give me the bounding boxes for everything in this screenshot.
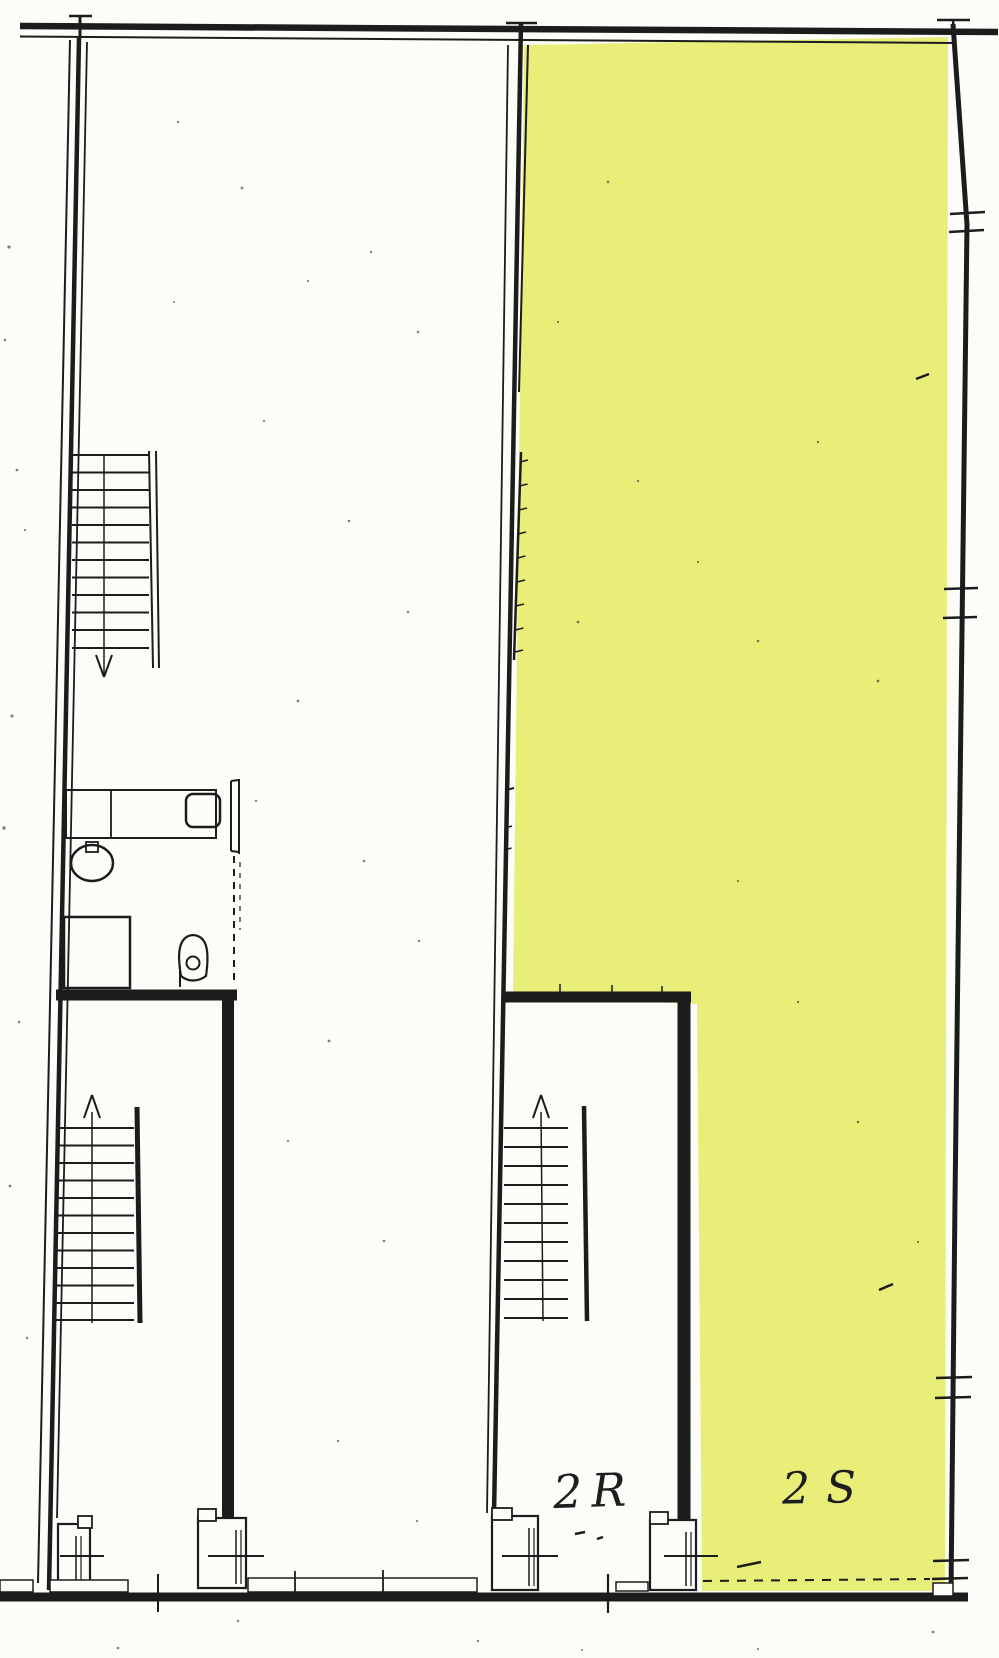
- staircase-middle: [504, 1095, 587, 1321]
- sill-segment: [933, 1583, 953, 1596]
- sill-segment: [248, 1578, 477, 1592]
- counter: [66, 790, 216, 838]
- counter-appliance: [186, 794, 220, 827]
- sink-tab: [86, 842, 98, 852]
- toilet-icon: [179, 935, 207, 987]
- wall-return: [231, 779, 239, 854]
- stair-stringer: [156, 451, 159, 668]
- stair-stringer: [584, 1106, 587, 1321]
- sill-segment: [50, 1580, 128, 1592]
- stair-stringer: [137, 1107, 140, 1323]
- stair-stringer: [149, 451, 153, 668]
- staircase-upper-left: [72, 451, 159, 677]
- pier: [492, 1508, 558, 1590]
- sill-segment: [616, 1582, 648, 1591]
- scanned-floor-plan-page: 2R 2S: [0, 0, 999, 1658]
- room-lower-left-walls: [56, 990, 237, 1522]
- room-2r-walls: [504, 984, 691, 1522]
- wall-line: [57, 42, 87, 1518]
- floor-plan-drawing: 2R 2S: [0, 0, 999, 1658]
- sill-segment: [0, 1580, 33, 1592]
- pier: [58, 1516, 104, 1586]
- highlight-polygon: [513, 37, 948, 1591]
- highlight-region-unit-2s: [513, 37, 948, 1591]
- shower-base: [64, 917, 130, 988]
- staircase-lower-left: [56, 1095, 140, 1323]
- top-wall: [20, 26, 998, 32]
- bathroom: [64, 779, 240, 988]
- unit-label-2r: 2R: [551, 1462, 636, 1519]
- stair-centerline: [541, 1112, 543, 1321]
- unit-label-2s: 2S: [781, 1462, 873, 1515]
- wall-line: [951, 24, 967, 1593]
- pier: [198, 1509, 264, 1588]
